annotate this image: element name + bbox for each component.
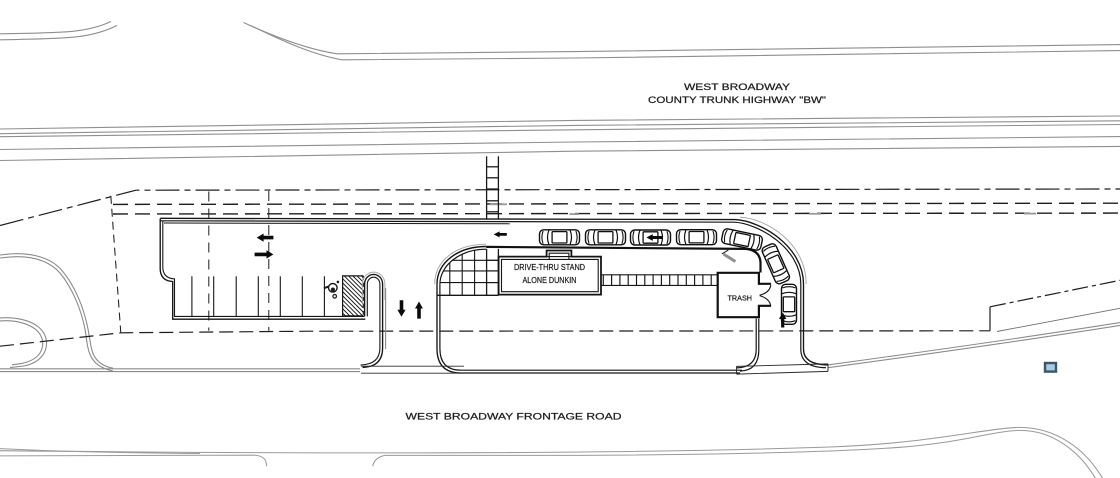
svg-text:ALONE DUNKIN: ALONE DUNKIN	[523, 276, 577, 285]
svg-text:COUNTY TRUNK HIGHWAY "BW": COUNTY TRUNK HIGHWAY "BW"	[648, 95, 826, 105]
svg-text:WEST BROADWAY FRONTAGE ROAD: WEST BROADWAY FRONTAGE ROAD	[406, 412, 622, 422]
svg-text:TRASH: TRASH	[728, 295, 753, 302]
svg-text:WEST BROADWAY: WEST BROADWAY	[684, 82, 790, 92]
svg-text:DRIVE-THRU STAND: DRIVE-THRU STAND	[514, 263, 585, 272]
